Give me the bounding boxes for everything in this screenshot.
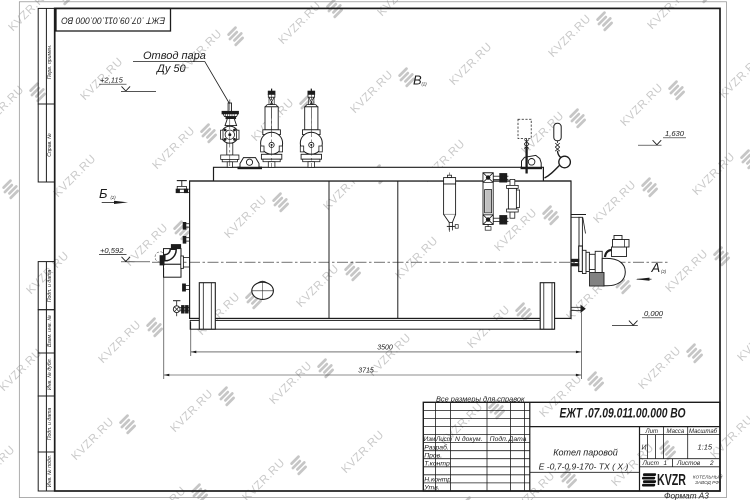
- svg-text:+2,115: +2,115: [100, 76, 124, 85]
- svg-text:2: 2: [709, 460, 714, 467]
- svg-text:ЗАВОД РФ: ЗАВОД РФ: [695, 480, 719, 485]
- svg-text:Масштаб: Масштаб: [689, 429, 718, 435]
- svg-text:Отвод пара: Отвод пара: [143, 50, 206, 62]
- svg-text:Все размеры для справок: Все размеры для справок: [436, 395, 525, 404]
- svg-text:(2): (2): [661, 269, 667, 274]
- svg-text:Котел паровой: Котел паровой: [553, 448, 618, 458]
- svg-text:Масса: Масса: [667, 429, 685, 435]
- svg-text:N докум.: N докум.: [455, 435, 483, 443]
- svg-text:KVZR: KVZR: [657, 472, 686, 489]
- svg-text:Инв. № дубл.: Инв. № дубл.: [47, 358, 53, 390]
- svg-text:Изм: Изм: [424, 436, 436, 443]
- svg-text:Н.контр: Н.контр: [424, 477, 451, 484]
- svg-text:КОТЕЛЬНЫЙ: КОТЕЛЬНЫЙ: [693, 473, 723, 480]
- svg-text:ЕЖТ .07.09.011.00.000 ВО: ЕЖТ .07.09.011.00.000 ВО: [61, 14, 166, 25]
- svg-text:Листов: Листов: [676, 460, 701, 467]
- svg-text:Инв. № подл.: Инв. № подл.: [47, 455, 53, 487]
- svg-text:А: А: [651, 260, 661, 275]
- svg-text:Ду 50: Ду 50: [155, 63, 187, 75]
- svg-text:0,000: 0,000: [644, 309, 664, 318]
- svg-text:Лист: Лист: [642, 460, 660, 467]
- svg-text:1,630: 1,630: [665, 129, 685, 138]
- svg-text:Лит: Лит: [645, 429, 658, 435]
- svg-text:Подп.: Подп.: [490, 435, 508, 443]
- svg-text:Лист: Лист: [435, 436, 452, 443]
- svg-text:Т.контр: Т.контр: [424, 460, 450, 467]
- svg-text:Б: Б: [99, 186, 108, 201]
- svg-text:+0,592: +0,592: [100, 246, 124, 255]
- svg-text:Формат А3: Формат А3: [664, 492, 709, 500]
- svg-text:3500: 3500: [377, 344, 393, 351]
- svg-text:Справ. №: Справ. №: [47, 133, 53, 157]
- svg-text:(2): (2): [422, 81, 428, 86]
- svg-text:1:15: 1:15: [698, 443, 713, 452]
- svg-text:Взам. инв. №: Взам. инв. №: [47, 315, 53, 347]
- svg-text:ЕЖТ .07.09.011.00.000 ВО: ЕЖТ .07.09.011.00.000 ВО: [560, 406, 686, 421]
- svg-text:Пров.: Пров.: [424, 452, 442, 459]
- svg-text:3715: 3715: [358, 367, 374, 374]
- svg-text:Разраб.: Разраб.: [424, 443, 449, 451]
- svg-text:1: 1: [664, 460, 668, 467]
- svg-text:(2): (2): [111, 195, 117, 200]
- svg-text:Дата: Дата: [508, 436, 527, 443]
- svg-text:Подп. и дата: Подп. и дата: [47, 408, 53, 441]
- svg-text:Подп. и дата: Подп. и дата: [47, 270, 53, 303]
- svg-text:Утв.: Утв.: [423, 485, 440, 492]
- svg-text:Перв. примен.: Перв. примен.: [47, 45, 53, 79]
- svg-text:Е -0,7-0,9-170- ТХ ( Х ): Е -0,7-0,9-170- ТХ ( Х ): [539, 462, 629, 472]
